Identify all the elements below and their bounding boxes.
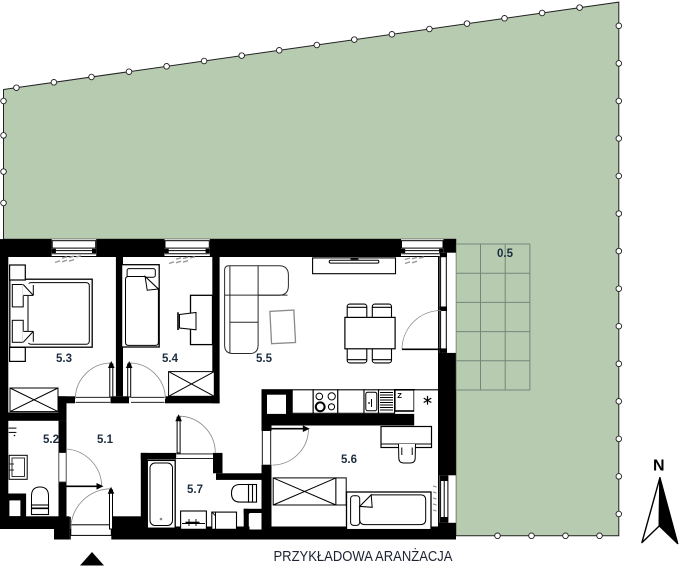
svg-text:0.5: 0.5 — [497, 248, 514, 260]
svg-text:5.4: 5.4 — [162, 353, 179, 365]
svg-text:5.2: 5.2 — [43, 434, 59, 446]
svg-text:N: N — [653, 457, 665, 474]
svg-text:5.1: 5.1 — [97, 434, 114, 446]
svg-text:5.5: 5.5 — [256, 353, 273, 365]
svg-text:PRZYKŁADOWA ARANŻACJA: PRZYKŁADOWA ARANŻACJA — [274, 547, 453, 565]
svg-text:5.7: 5.7 — [187, 484, 203, 496]
svg-text:5.6: 5.6 — [341, 454, 357, 466]
svg-text:5.3: 5.3 — [56, 353, 72, 365]
svg-text:Z: Z — [397, 391, 402, 400]
